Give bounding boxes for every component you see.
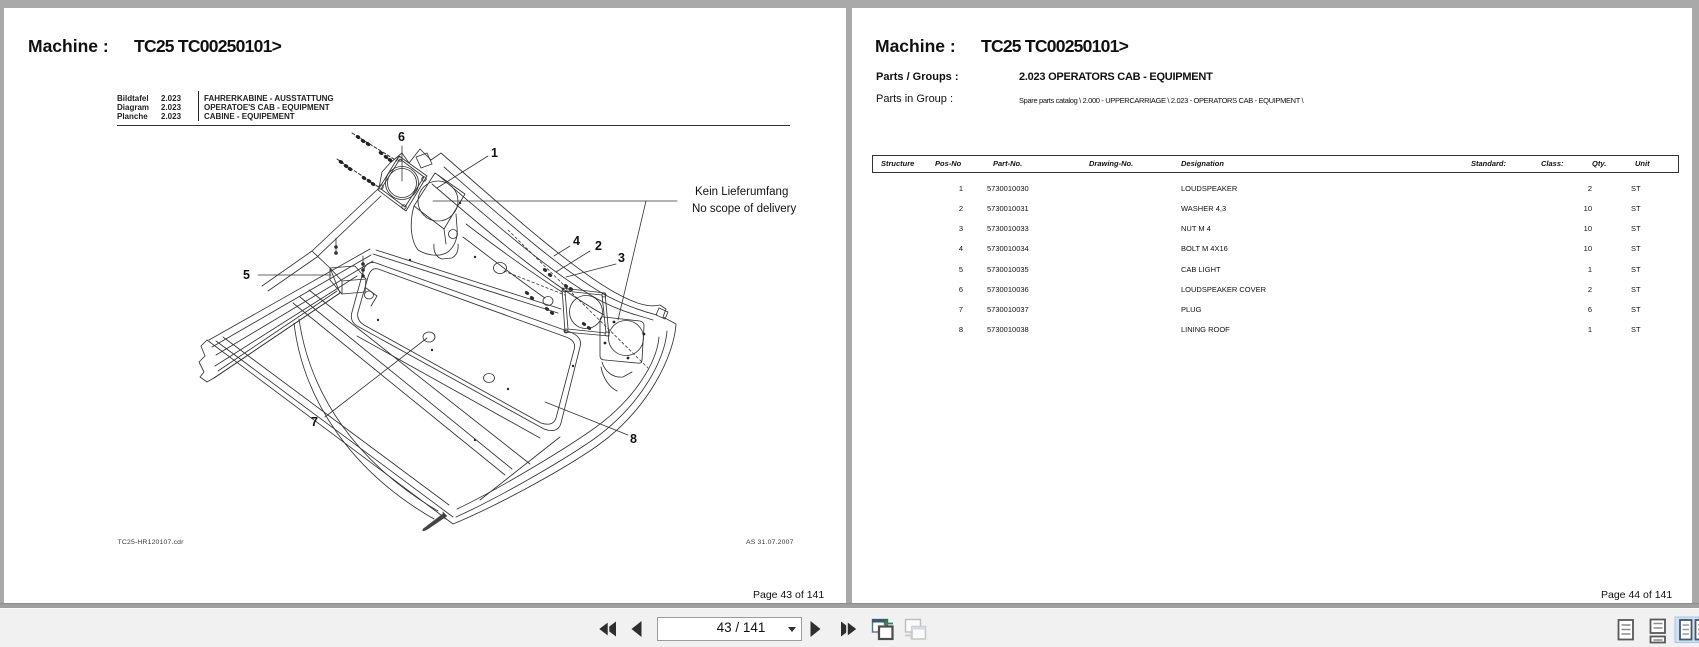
svg-text:5: 5 (243, 268, 250, 282)
svg-text:4: 4 (573, 234, 580, 248)
svg-text:2: 2 (595, 239, 602, 253)
svg-text:8: 8 (630, 432, 637, 446)
svg-text:7: 7 (311, 415, 318, 429)
svg-text:1: 1 (491, 146, 498, 160)
svg-text:6: 6 (398, 130, 405, 144)
svg-text:3: 3 (618, 251, 625, 265)
